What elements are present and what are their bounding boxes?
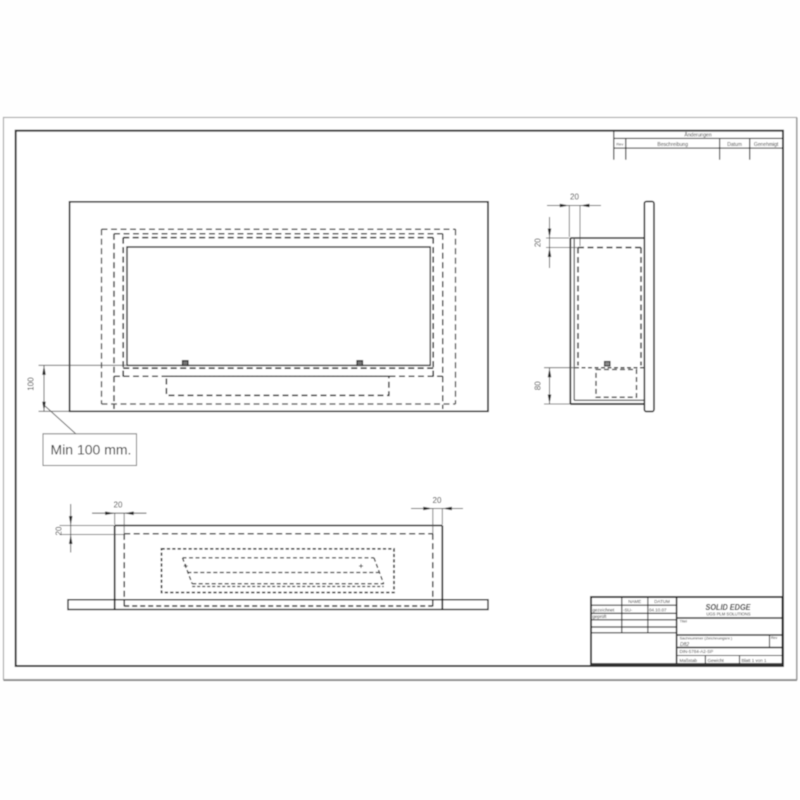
- svg-text:Beschreibung: Beschreibung: [657, 142, 688, 148]
- svg-text:Datum: Datum: [727, 142, 742, 148]
- svg-text:Rev: Rev: [616, 142, 623, 147]
- svg-text:20: 20: [570, 193, 579, 202]
- svg-text:DIN-5784-A2-SP: DIN-5784-A2-SP: [680, 649, 714, 654]
- svg-text:UGS PLM SOLUTIONS: UGS PLM SOLUTIONS: [706, 612, 750, 617]
- svg-text:geprüft: geprüft: [593, 614, 608, 619]
- svg-text:Gewicht: Gewicht: [708, 658, 725, 663]
- svg-text:80: 80: [534, 381, 543, 390]
- svg-text:Maßstab: Maßstab: [680, 658, 698, 663]
- svg-text:Genehmigt: Genehmigt: [754, 142, 779, 148]
- svg-text:NAME: NAME: [628, 599, 641, 604]
- svg-text:DATUM: DATUM: [654, 599, 670, 604]
- svg-text:Dft2: Dft2: [680, 642, 689, 648]
- svg-text:20: 20: [433, 496, 442, 505]
- svg-text:Titel: Titel: [680, 619, 688, 624]
- svg-text:Min 100 mm.: Min 100 mm.: [51, 442, 132, 458]
- svg-text:04.10.07: 04.10.07: [649, 608, 667, 613]
- svg-text:100: 100: [27, 377, 36, 391]
- svg-text:Blatt 1 von 1: Blatt 1 von 1: [742, 658, 768, 663]
- svg-text:20: 20: [114, 501, 123, 510]
- svg-text:20: 20: [55, 526, 64, 535]
- svg-text:Änderungen: Änderungen: [684, 132, 711, 139]
- svg-text:-SU-: -SU-: [623, 608, 633, 613]
- svg-text:20: 20: [534, 238, 543, 247]
- svg-text:Rev: Rev: [771, 636, 777, 640]
- svg-text:gezeichnet: gezeichnet: [593, 608, 616, 613]
- svg-text:Sachnummer (Zeichnungsnr.): Sachnummer (Zeichnungsnr.): [680, 636, 733, 641]
